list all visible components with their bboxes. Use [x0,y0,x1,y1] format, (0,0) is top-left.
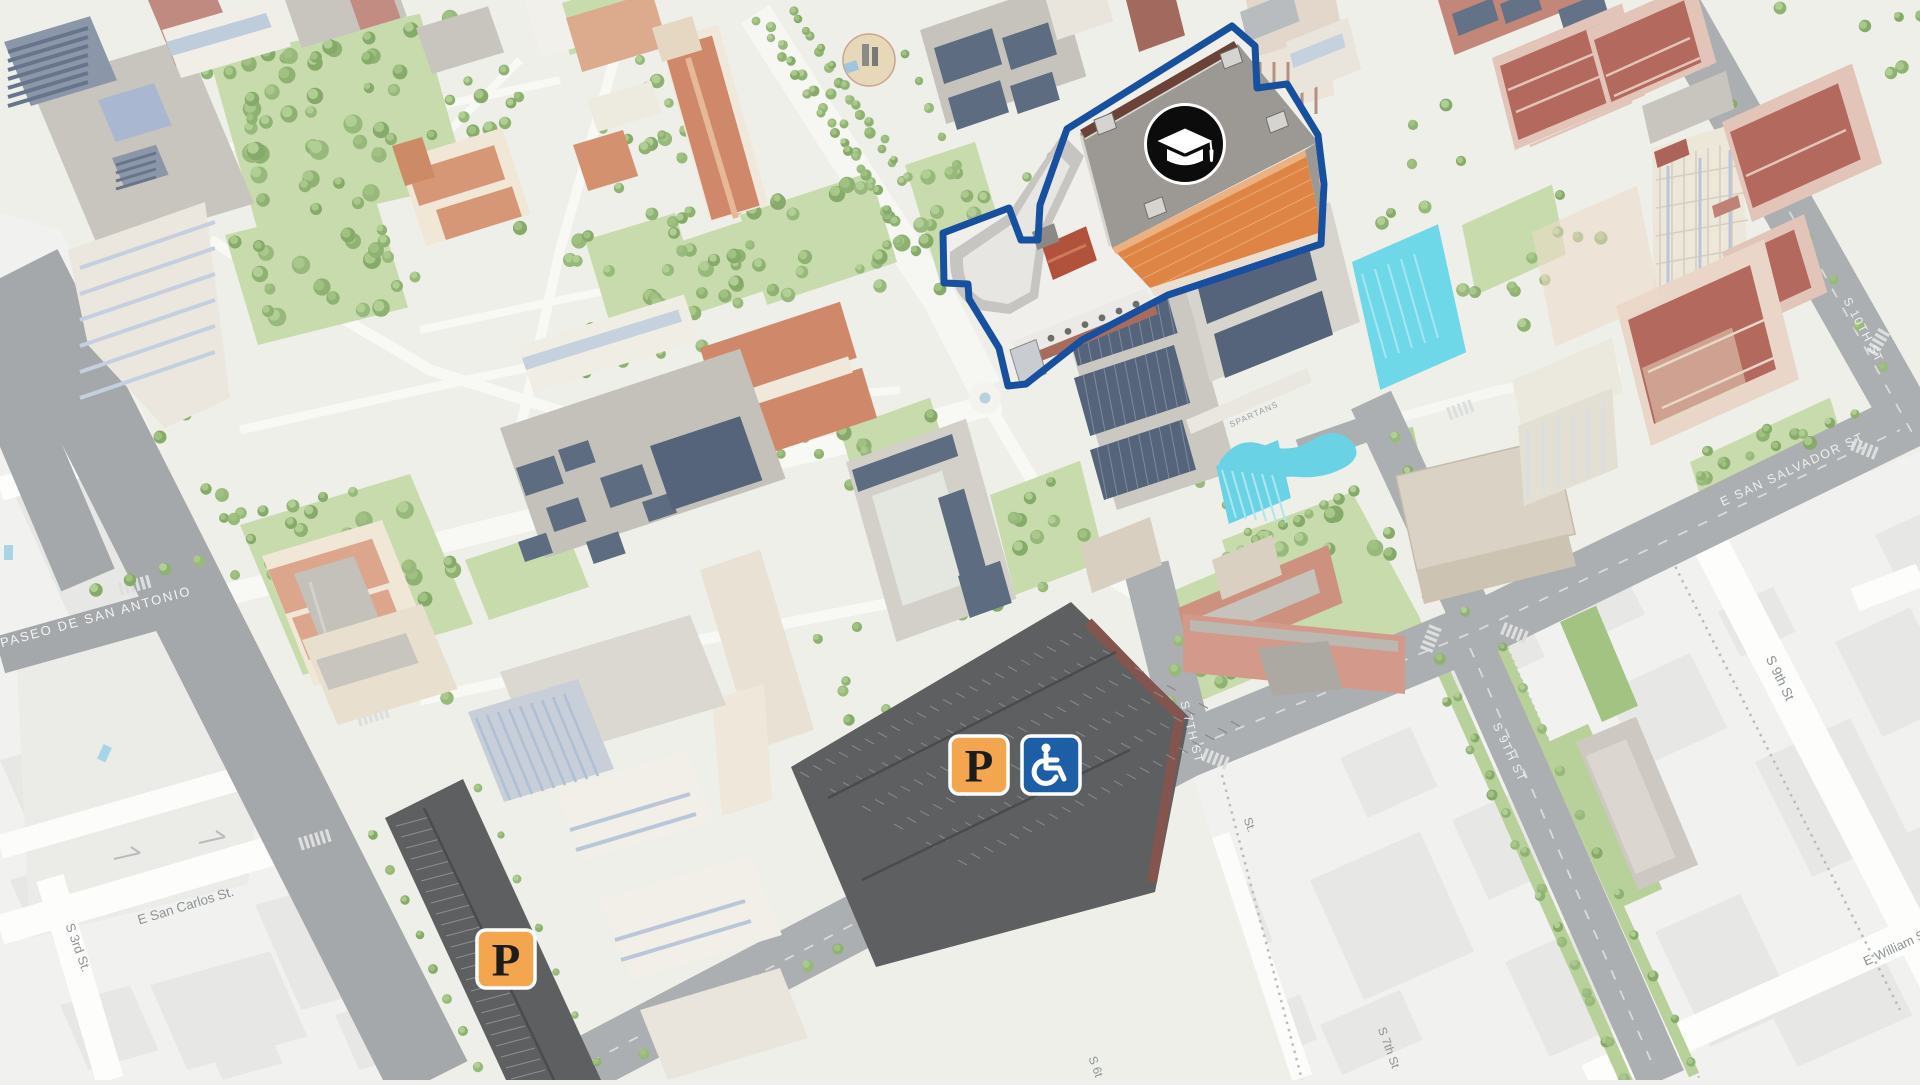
svg-text:P: P [492,935,521,987]
svg-text:P: P [965,741,994,793]
